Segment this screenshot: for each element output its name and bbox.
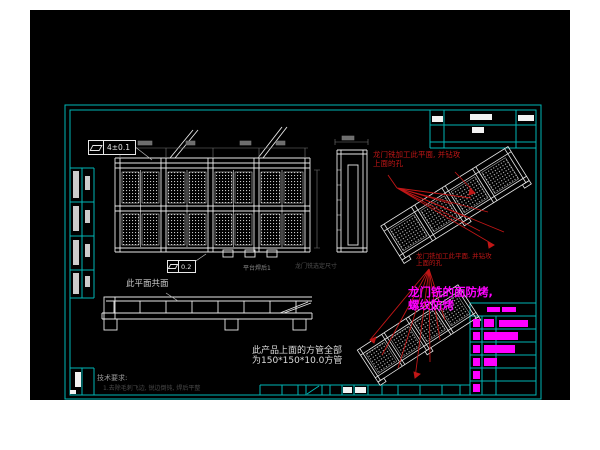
magenta-note-line2: 螺纹防烤 (408, 299, 493, 312)
flatness-value: 4±0.1 (104, 143, 130, 152)
square-tube-note: 此产品上面的方管全部 为150*150*10.0方管 (252, 346, 342, 367)
parts-table-text-bars (473, 307, 528, 392)
tube-note-line1: 此产品上面的方管全部 (252, 346, 342, 356)
tube-note-line2: 为150*150*10.0方管 (252, 356, 342, 366)
red-note-line2: 上面的孔 (416, 260, 492, 267)
flatness-icon (168, 261, 179, 272)
red-note-line2: 上面的孔 (373, 160, 460, 169)
platform-label: 平台焊后1 (243, 266, 271, 273)
flatness-icon (89, 141, 104, 154)
cad-screenshot-page: 4±0.1 0.2 此平面共面 平台焊后1 龙门铣选定尺寸 龙门铣加工此平面, … (0, 0, 600, 450)
tech-requirements-line: 1.去除毛刺飞边, 锐边倒钝, 焊后平整 (103, 386, 200, 393)
elevation-view (102, 297, 312, 330)
cad-canvas: 4±0.1 0.2 此平面共面 平台焊后1 龙门铣选定尺寸 龙门铣加工此平面, … (30, 10, 570, 400)
section-view (337, 150, 367, 252)
flatness-frame-mid: 0.2 (167, 260, 196, 273)
red-note-top: 龙门铣加工此平面, 并钻攻 上面的孔 (373, 151, 460, 168)
plan-view (115, 127, 310, 257)
cad-linework (30, 10, 570, 400)
flatness-frame-top: 4±0.1 (88, 140, 136, 155)
tech-requirements-title: 技术要求: (97, 374, 127, 382)
flatness-value: 0.2 (179, 263, 191, 271)
magenta-note: 龙门铣的面防烤, 螺纹防烤 (408, 286, 493, 312)
red-note-mid: 龙门铣加工此平面, 并钻攻 上面的孔 (416, 253, 492, 268)
gantry-dim-label: 龙门铣选定尺寸 (295, 264, 337, 271)
coplanar-note: 此平面共面 (126, 280, 169, 290)
